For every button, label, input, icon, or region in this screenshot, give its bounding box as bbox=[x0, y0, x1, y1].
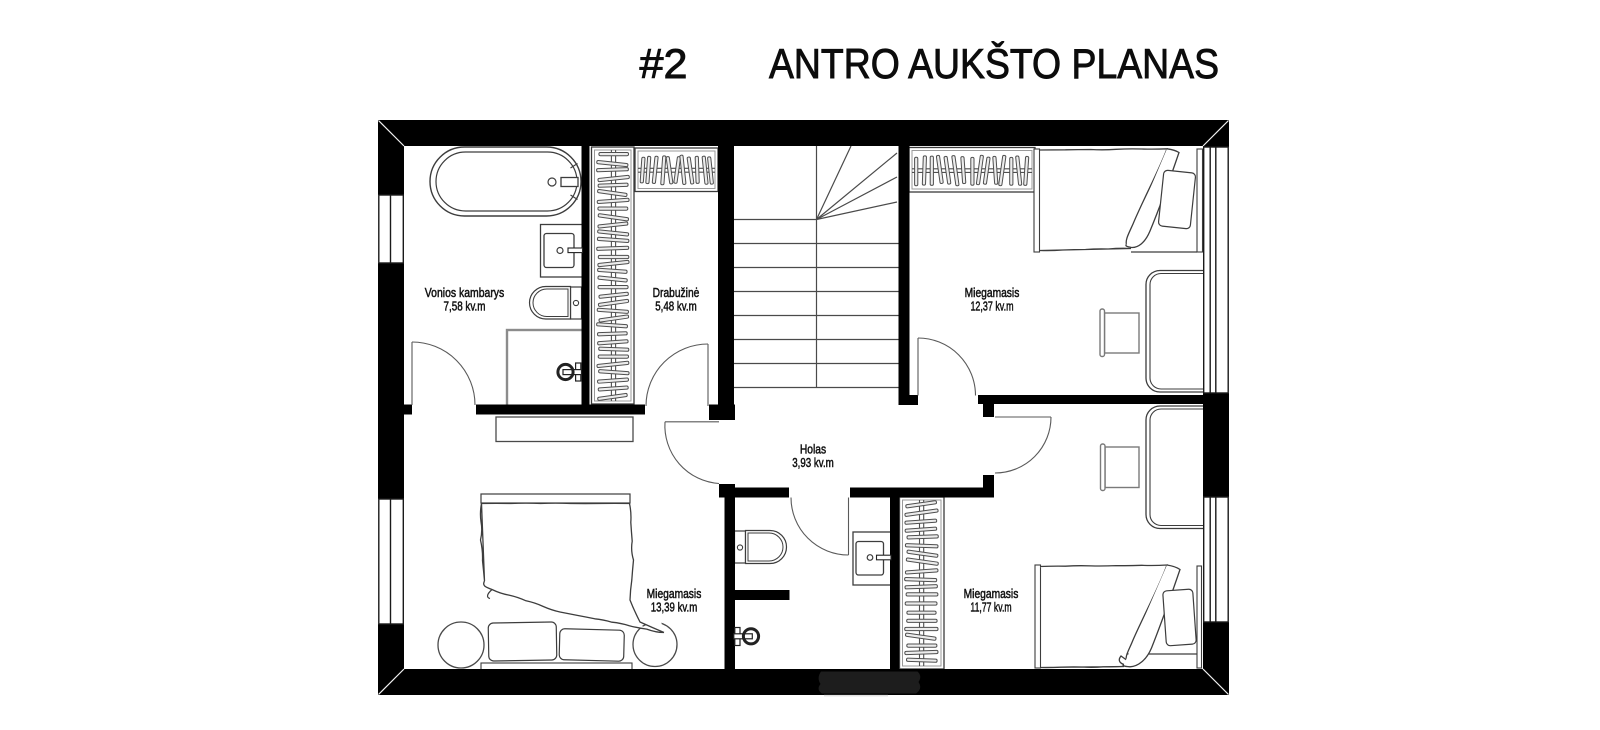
svg-text:11,77 kv.m: 11,77 kv.m bbox=[970, 600, 1011, 615]
svg-text:12,37 kv.m: 12,37 kv.m bbox=[970, 298, 1013, 313]
svg-text:3,93 kv.m: 3,93 kv.m bbox=[792, 455, 834, 470]
svg-text:ANTRO AUKŠTO PLANAS: ANTRO AUKŠTO PLANAS bbox=[769, 40, 1219, 87]
svg-text:#2: #2 bbox=[640, 40, 688, 87]
svg-text:7,58 kv.m: 7,58 kv.m bbox=[444, 298, 486, 313]
svg-text:5,48 kv.m: 5,48 kv.m bbox=[655, 298, 697, 313]
svg-text:13,39 kv.m: 13,39 kv.m bbox=[651, 600, 698, 615]
